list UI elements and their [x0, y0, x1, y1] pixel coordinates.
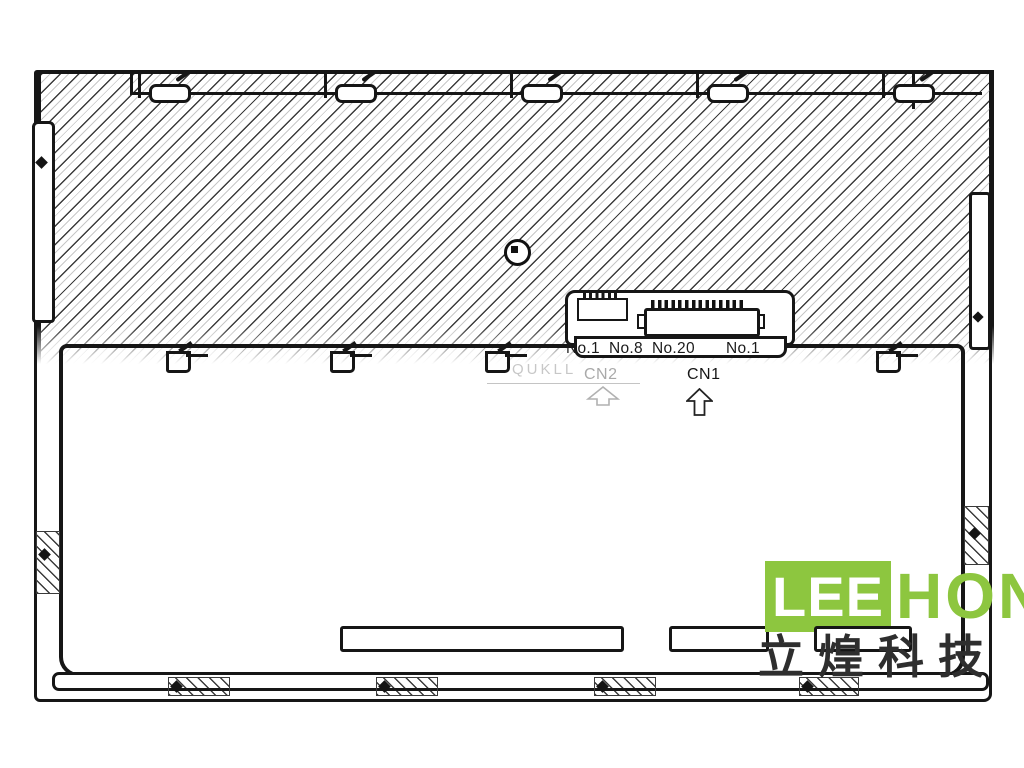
tab-flag [547, 70, 562, 82]
tab-stem [882, 72, 885, 98]
hook-mark-icon [378, 680, 391, 693]
top-mounting-tab [696, 72, 762, 104]
left-edge-rail [32, 121, 55, 323]
cn2-connector [577, 298, 628, 321]
pin-label-cn1-no1: No.1 [726, 340, 760, 358]
top-mounting-tab [882, 72, 948, 104]
pin-label-cn2-no8: No.8 [609, 340, 643, 358]
ground-core [511, 246, 518, 253]
tab-stem [510, 72, 513, 98]
brand-logo-lee-box: LEE [765, 561, 891, 632]
cn1-label: CN1 [687, 366, 721, 384]
cn2-up-arrow-icon [586, 386, 620, 406]
hook-mark-icon [596, 680, 609, 693]
top-rail-step-left [130, 72, 133, 95]
logo-chinese-text: 立煌科技 [758, 632, 1024, 683]
faded-watermark-text: QUKLL [512, 361, 576, 378]
bottom-mounting-pad [376, 677, 438, 696]
label-area-rect [340, 626, 624, 652]
hook-mark-icon [38, 548, 51, 561]
panel-rear-drawing: No.1 No.8 No.20 No.1 QUKLL CN2 CN1 LEE H… [0, 0, 1024, 768]
hook-mark-icon [972, 311, 983, 322]
cn2-label: CN2 [584, 366, 618, 384]
hook-mark-icon [170, 680, 183, 693]
tab-hook [149, 84, 191, 103]
cn1-connector [644, 308, 760, 337]
pin-label-cn2-no1: No.1 [566, 340, 600, 358]
back-cover-hatched-area [37, 70, 994, 370]
hook-mark-icon [35, 156, 48, 169]
tab-stem [324, 72, 327, 98]
ground-point-icon [504, 239, 531, 266]
tab-stem [138, 72, 141, 98]
bottom-mounting-pad [168, 677, 230, 696]
cn1-up-arrow-icon [686, 388, 713, 416]
label-area-rect [669, 626, 769, 652]
tab-hook [707, 84, 749, 103]
tab-flag [733, 70, 748, 82]
tab-hook [893, 84, 935, 103]
hook-mark-icon [968, 527, 981, 540]
tab-flag [175, 70, 190, 82]
top-mounting-tab [510, 72, 576, 104]
side-mounting-pad-left [36, 531, 60, 594]
top-mounting-tab [324, 72, 390, 104]
tab-stem [696, 72, 699, 98]
tab-hook [335, 84, 377, 103]
logo-hon-text: HON [896, 556, 1024, 636]
pin-label-cn1-no20: No.20 [652, 340, 695, 358]
right-edge-rail [969, 192, 991, 350]
tab-hook [521, 84, 563, 103]
top-mounting-tab [138, 72, 204, 104]
logo-lee-text: LEE [772, 569, 884, 625]
tab-flag [919, 70, 934, 82]
bottom-mounting-pad [594, 677, 656, 696]
tab-flag [361, 70, 376, 82]
